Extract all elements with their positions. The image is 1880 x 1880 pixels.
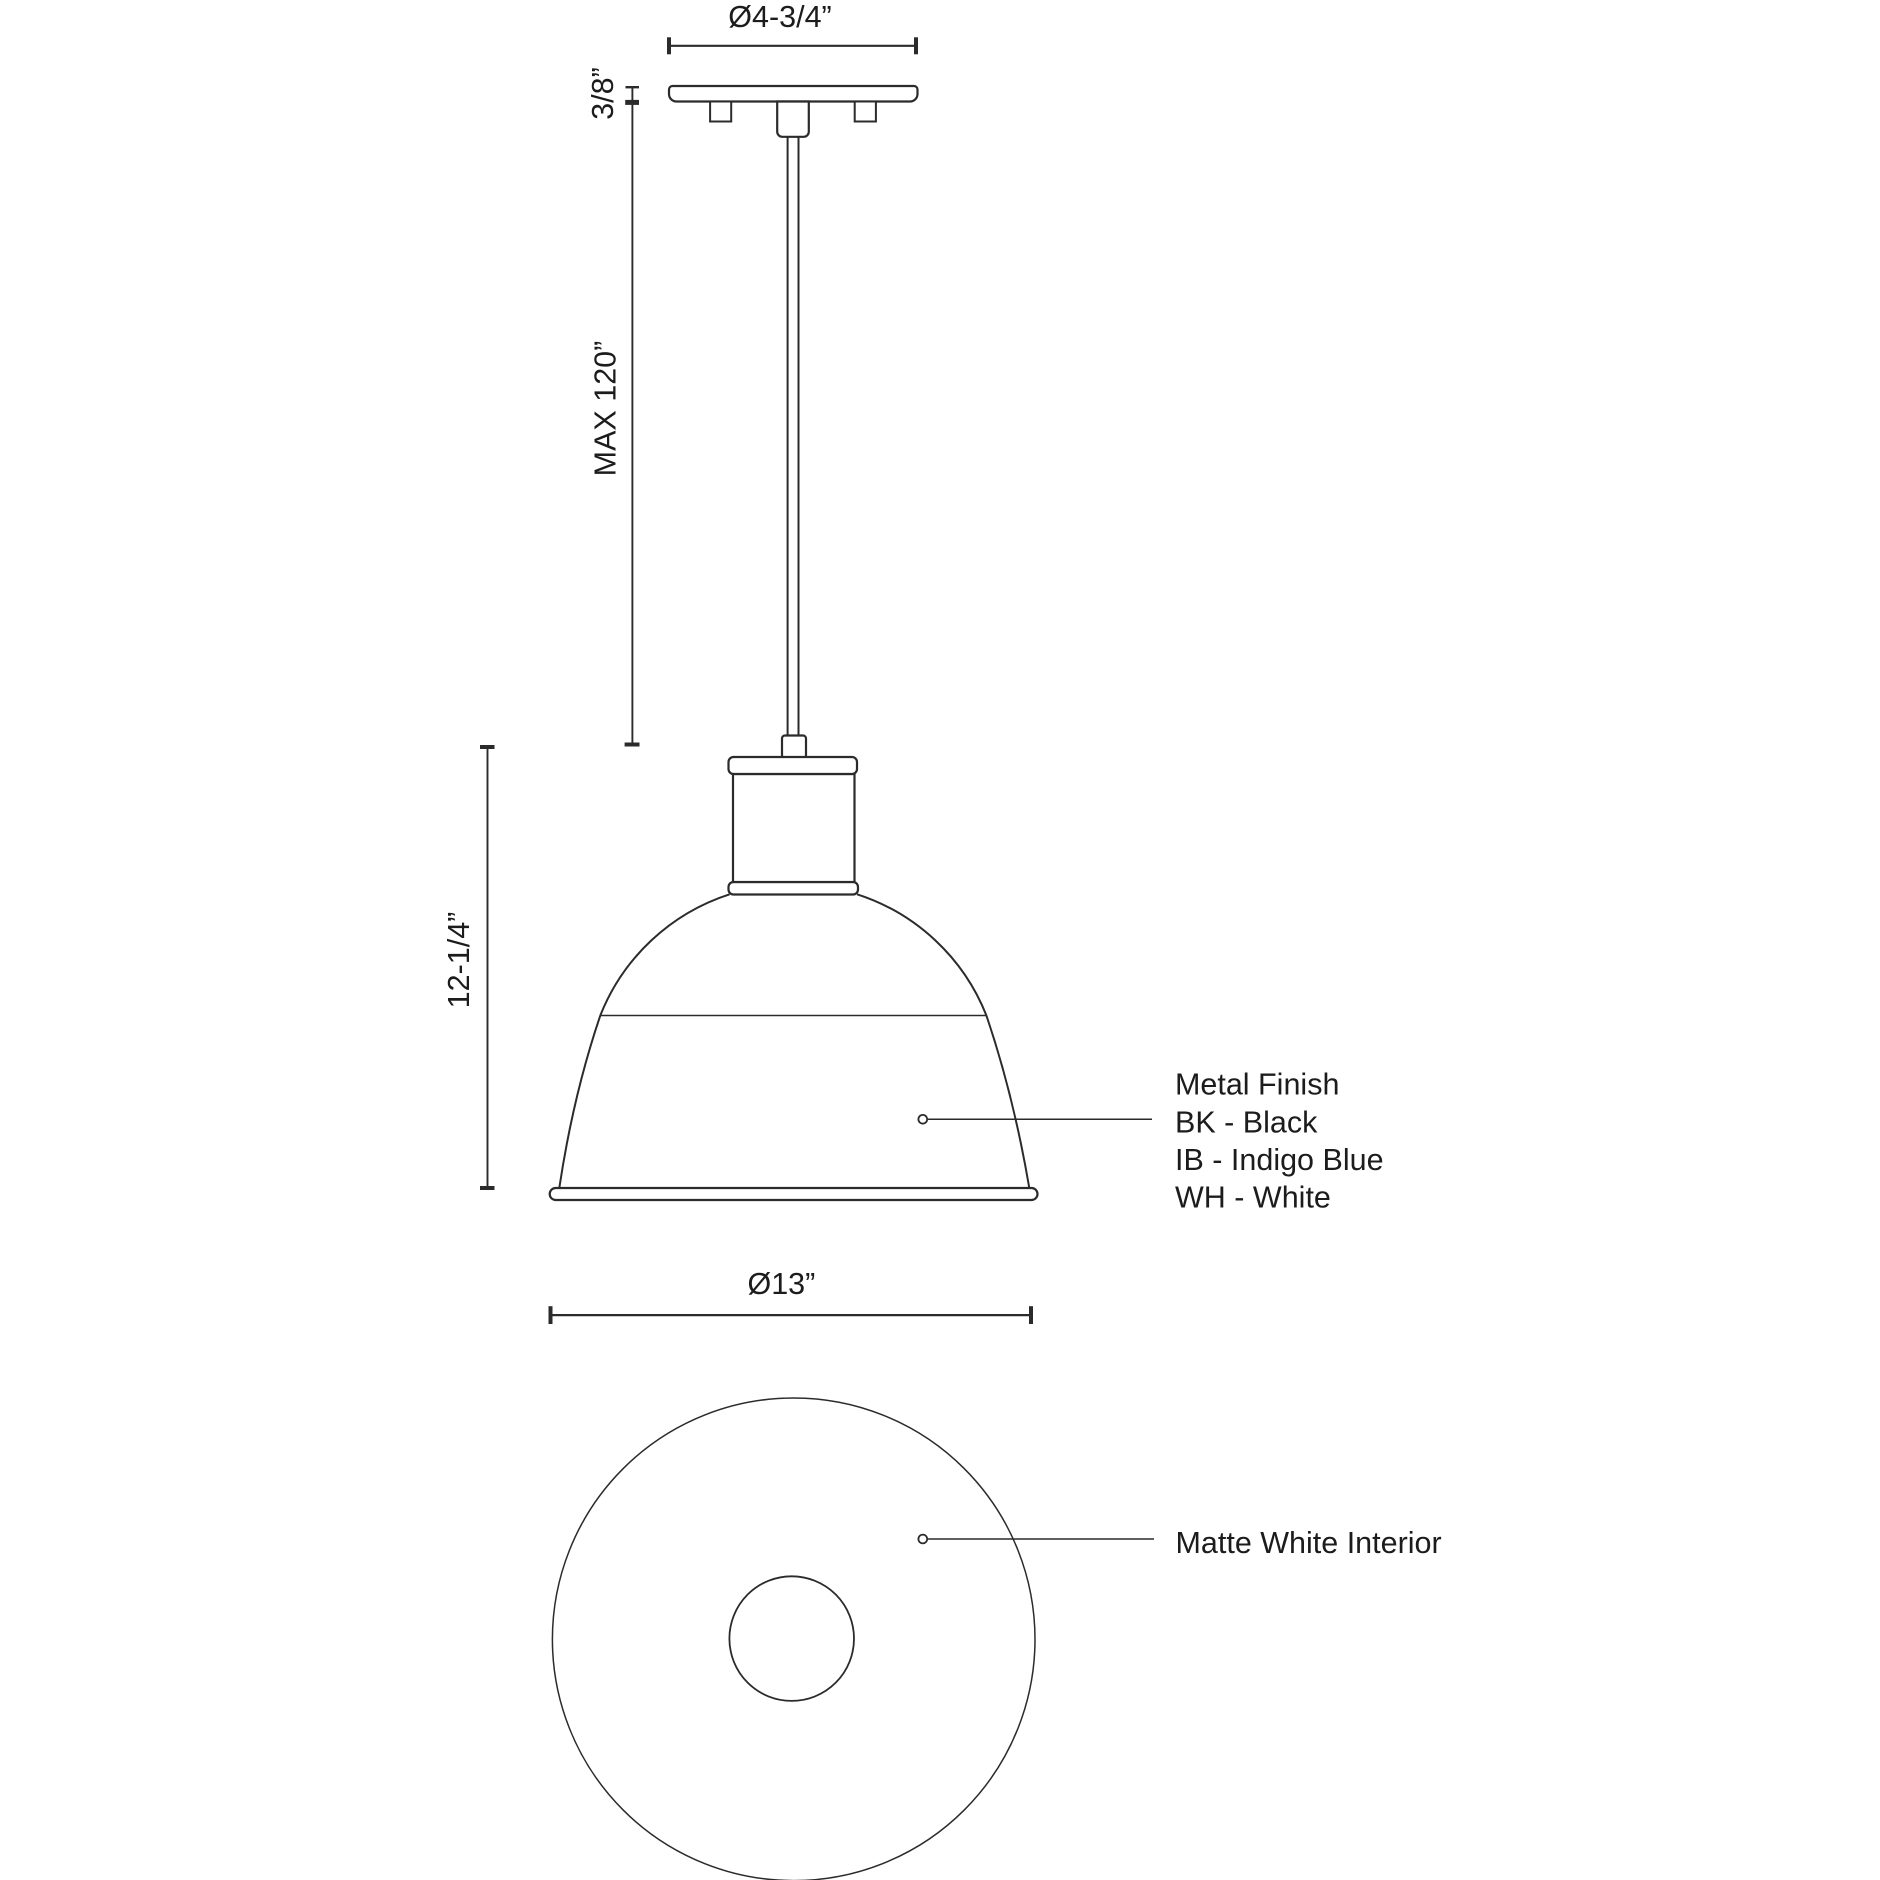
svg-text:Ø13”: Ø13” <box>747 1267 815 1301</box>
svg-text:IB - Indigo Blue: IB - Indigo Blue <box>1175 1143 1384 1177</box>
svg-text:12-1/4”: 12-1/4” <box>442 912 476 1009</box>
svg-text:BK - Black: BK - Black <box>1175 1106 1318 1140</box>
svg-text:Matte White Interior: Matte White Interior <box>1176 1526 1442 1560</box>
svg-text:3/8”: 3/8” <box>586 67 620 120</box>
svg-text:Ø4-3/4”: Ø4-3/4” <box>728 0 831 34</box>
svg-text:MAX 120”: MAX 120” <box>589 341 623 477</box>
svg-text:Metal Finish: Metal Finish <box>1175 1067 1339 1101</box>
svg-text:WH - White: WH - White <box>1175 1181 1331 1215</box>
